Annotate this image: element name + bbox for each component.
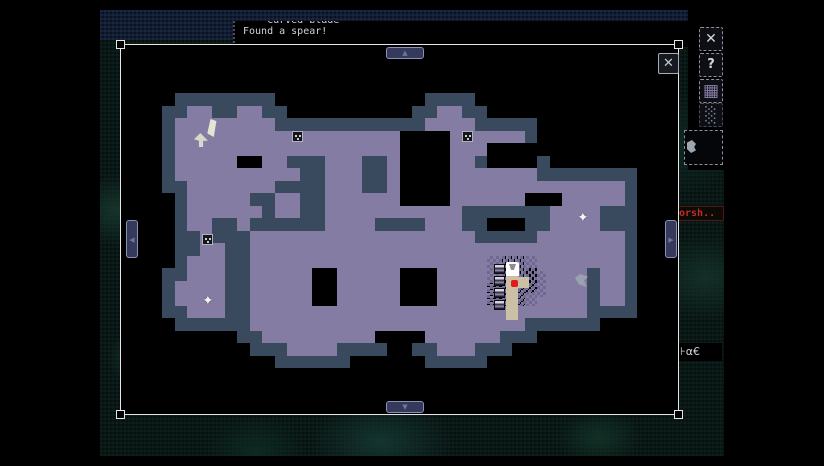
map-tile-wall	[237, 331, 250, 343]
map-tile-floor	[350, 181, 362, 193]
map-tile-wall	[162, 293, 175, 306]
map-tile-floor	[450, 243, 462, 256]
map-tile-floor	[537, 231, 550, 243]
map-tile-floor	[362, 268, 375, 281]
map-tile-floor	[575, 181, 587, 193]
map-tile-wall	[175, 193, 187, 206]
map-tile-floor	[387, 181, 400, 193]
map-tile-floor	[237, 206, 250, 218]
scroll-right-button[interactable]: ▶	[665, 220, 677, 258]
map-tile-wall	[300, 356, 312, 368]
map-tile-floor	[412, 306, 425, 318]
map-tile-floor	[362, 243, 375, 256]
marker-diamond-button[interactable]: ✕	[699, 27, 723, 51]
map-tile-floor	[237, 193, 250, 206]
map-tile-floor	[287, 331, 300, 343]
map-tile-floor	[337, 193, 350, 206]
map-tile-floor	[387, 156, 400, 168]
map-tile-floor	[400, 318, 412, 331]
map-tile-floor	[437, 243, 450, 256]
map-tile-floor	[575, 306, 587, 318]
question-icon: ?	[700, 54, 722, 76]
map-tile-floor	[437, 231, 450, 243]
map-tile-floor	[275, 256, 287, 268]
map-tile-floor	[175, 281, 187, 293]
map-tile-wall	[325, 118, 337, 131]
map-tile-wall	[250, 343, 262, 356]
map-tile-floor	[425, 231, 437, 243]
map-tile-floor	[262, 331, 275, 343]
map-tile-floor	[375, 268, 387, 281]
map-tile-floor	[612, 231, 625, 243]
map-tile-wall	[387, 218, 400, 231]
map-tile-wall	[187, 318, 200, 331]
map-tile-floor	[437, 281, 450, 293]
map-tile-floor	[550, 256, 562, 268]
map-tile-wall	[412, 118, 425, 131]
map-tile-wall	[337, 118, 350, 131]
map-tile-floor	[250, 231, 262, 243]
map-tile-wall	[162, 168, 175, 181]
map-tile-wall	[162, 268, 175, 281]
location-label: orsh..	[672, 206, 724, 221]
map-tile-wall	[575, 318, 587, 331]
map-tile-floor	[350, 231, 362, 243]
map-tile-floor	[387, 131, 400, 143]
map-tile-floor	[350, 143, 362, 156]
map-tile-wall	[312, 181, 325, 193]
map-tile-wall	[600, 168, 612, 181]
map-tile-wall	[625, 293, 637, 306]
map-tile-floor	[375, 206, 387, 218]
map-tile-floor	[450, 131, 462, 143]
map-tile-floor	[562, 218, 575, 231]
map-tile-floor	[175, 156, 187, 168]
map-tile-floor	[387, 281, 400, 293]
marker-notch	[509, 264, 516, 270]
map-tile-floor	[437, 118, 450, 131]
map-tile-wall	[475, 356, 487, 368]
close-button[interactable]: ✕	[658, 53, 679, 74]
map-tile-floor	[287, 206, 300, 218]
map-tile-floor	[475, 318, 487, 331]
map-tile-floor	[362, 318, 375, 331]
map-tile-wall	[337, 356, 350, 368]
map-tile-floor	[325, 193, 337, 206]
map-tile-wall	[587, 281, 600, 293]
map-tile-floor	[262, 131, 275, 143]
map-tile-wall	[525, 318, 537, 331]
map-tile-wall	[600, 206, 612, 218]
map-tile-floor	[387, 231, 400, 243]
map-tile-wall	[262, 93, 275, 106]
map-tile-floor	[437, 256, 450, 268]
map-tile-wall	[175, 268, 187, 281]
map-tile-floor	[337, 131, 350, 143]
map-tile-wall	[300, 193, 312, 206]
map-tile-floor	[212, 168, 225, 181]
map-tile-floor	[200, 281, 212, 293]
map-tile-wall	[612, 206, 625, 218]
map-tile-floor	[462, 118, 475, 131]
map-tile-floor	[337, 281, 350, 293]
map-tile-wall	[625, 231, 637, 243]
map-tile-floor	[475, 281, 487, 293]
map-tile-wall	[225, 231, 237, 243]
map-tile-wall	[237, 231, 250, 243]
scroll-left-button[interactable]: ◀	[126, 220, 138, 258]
help-button[interactable]: ?	[699, 53, 723, 77]
map-tile-wall	[625, 181, 637, 193]
map-tile-floor	[250, 306, 262, 318]
map-tile-floor	[287, 343, 300, 356]
grid-dotted-button[interactable]: ░	[699, 103, 723, 127]
map-tile-floor	[450, 281, 462, 293]
map-tile-floor	[425, 218, 437, 231]
map-tile-wall	[250, 218, 262, 231]
map-tile-floor	[337, 168, 350, 181]
map-tile-wall	[425, 343, 437, 356]
item-shape	[194, 133, 208, 147]
game-screen: ✕ ? ▦ ░ orsh.. ⊦α€ *** Curved blade ****…	[0, 0, 824, 466]
map-tile-floor	[450, 256, 462, 268]
map-tile-floor	[437, 306, 450, 318]
map-tile-wall	[525, 331, 537, 343]
map-marker-player-dot-icon	[511, 280, 518, 287]
map-tile-floor	[275, 281, 287, 293]
map-tile-floor	[187, 206, 200, 218]
map-tile-floor	[500, 181, 512, 193]
map-marker-chest-icon	[462, 131, 473, 142]
map-marker-item-pick-icon	[193, 132, 210, 148]
map-tile-wall	[537, 206, 550, 218]
map-tile-floor	[525, 243, 537, 256]
map-tile-floor	[612, 256, 625, 268]
map-tile-floor	[487, 193, 500, 206]
map-tile-floor	[362, 293, 375, 306]
map-tile-floor	[600, 281, 612, 293]
map-tile-wall	[625, 206, 637, 218]
map-tile-floor	[200, 193, 212, 206]
map-tile-floor	[475, 193, 487, 206]
map-tile-wall	[362, 181, 375, 193]
map-tile-floor	[337, 143, 350, 156]
map-tile-floor	[462, 281, 475, 293]
map-tile-floor	[262, 243, 275, 256]
map-tile-floor	[300, 343, 312, 356]
map-tile-floor	[562, 193, 575, 206]
map-tile-wall	[600, 218, 612, 231]
chest-dots	[295, 135, 297, 137]
map-tile-floor	[437, 343, 450, 356]
map-tile-wall	[300, 181, 312, 193]
map-tile-floor	[450, 106, 462, 118]
map-tile-floor	[250, 281, 262, 293]
map-tile-floor	[262, 143, 275, 156]
map-tile-wall	[175, 318, 187, 331]
map-tile-floor	[200, 256, 212, 268]
map-tile-floor	[612, 281, 625, 293]
map-tile-floor	[287, 193, 300, 206]
map-tile-floor	[462, 193, 475, 206]
map-tile-floor	[462, 256, 475, 268]
map-tile-floor	[287, 293, 300, 306]
map-tile-floor	[450, 168, 462, 181]
map-tile-floor	[225, 168, 237, 181]
map-tile-floor	[187, 256, 200, 268]
map-tile-floor	[462, 243, 475, 256]
map-tile-floor	[262, 256, 275, 268]
map-tile-wall	[187, 231, 200, 243]
map-tile-wall	[262, 106, 275, 118]
map-tile-wall	[212, 318, 225, 331]
map-tile-wall	[475, 218, 487, 231]
map-tile-floor	[212, 256, 225, 268]
map-tile-wall	[625, 306, 637, 318]
map-tile-wall	[362, 118, 375, 131]
map-tile-wall	[212, 218, 225, 231]
map-tile-wall	[225, 243, 237, 256]
map-tile-wall	[187, 243, 200, 256]
map-tile-wall	[312, 356, 325, 368]
map-tile-floor	[562, 231, 575, 243]
map-tile-floor	[187, 168, 200, 181]
map-tile-wall	[575, 168, 587, 181]
map-tile-wall	[512, 118, 525, 131]
map-tile-floor	[187, 106, 200, 118]
map-tile-floor	[475, 181, 487, 193]
window-corner-tick	[674, 40, 683, 49]
map-tile-floor	[325, 168, 337, 181]
map-tile-wall	[225, 268, 237, 281]
map-tile-floor	[412, 243, 425, 256]
map-tile-wall	[312, 193, 325, 206]
map-tile-floor	[400, 231, 412, 243]
map-tile-floor	[212, 193, 225, 206]
map-tile-floor	[550, 181, 562, 193]
map-tile-floor	[337, 268, 350, 281]
map-tile-floor	[337, 256, 350, 268]
map-tile-floor	[437, 218, 450, 231]
map-tile-wall	[162, 143, 175, 156]
map-tile-floor	[287, 231, 300, 243]
map-tile-floor	[262, 118, 275, 131]
map-tile-floor	[575, 243, 587, 256]
map-tile-floor	[287, 168, 300, 181]
map-tile-floor	[375, 306, 387, 318]
map-tile-floor	[175, 131, 187, 143]
map-tile-wall	[425, 93, 437, 106]
map-tile-wall	[425, 106, 437, 118]
map-tile-wall	[287, 118, 300, 131]
map-tile-wall	[262, 343, 275, 356]
map-tile-floor	[325, 156, 337, 168]
map-tile-floor	[337, 331, 350, 343]
map-tile-wall	[387, 118, 400, 131]
map-tile-floor	[612, 181, 625, 193]
map-tile-wall	[625, 168, 637, 181]
map-tile-wall	[287, 181, 300, 193]
map-tile-wall	[550, 318, 562, 331]
map-tile-wall	[462, 206, 475, 218]
map-tile-floor	[325, 256, 337, 268]
panel-slot-box[interactable]	[684, 130, 723, 165]
map-tile-floor	[425, 118, 437, 131]
map-tile-floor	[387, 306, 400, 318]
map-tile-floor	[512, 168, 525, 181]
map-tile-floor	[275, 306, 287, 318]
map-tile-floor	[262, 306, 275, 318]
map-tile-floor	[450, 231, 462, 243]
map-tile-floor	[325, 206, 337, 218]
map-tile-floor	[350, 243, 362, 256]
window-corner-tick	[116, 40, 125, 49]
map-tile-wall	[537, 218, 550, 231]
map-tile-floor	[250, 168, 262, 181]
map-tile-wall	[237, 306, 250, 318]
map-tile-floor	[200, 156, 212, 168]
map-tile-floor	[225, 131, 237, 143]
map-tile-floor	[325, 306, 337, 318]
map-marker-chest-icon	[202, 234, 213, 245]
map-tile-floor	[337, 181, 350, 193]
map-tile-wall	[525, 131, 537, 143]
map-tile-floor	[412, 256, 425, 268]
map-tile-wall	[487, 231, 500, 243]
map-tile-wall	[212, 93, 225, 106]
map-tile-wall	[537, 168, 550, 181]
map-tile-floor	[475, 306, 487, 318]
map-tile-wall	[500, 118, 512, 131]
map-tile-floor	[262, 156, 275, 168]
map-tile-wall	[525, 118, 537, 131]
map-tile-floor	[437, 106, 450, 118]
map-tile-floor	[275, 193, 287, 206]
grid-solid-button[interactable]: ▦	[699, 79, 723, 103]
map-tile-floor	[250, 143, 262, 156]
window-corner-tick	[674, 410, 683, 419]
map-tile-wall	[475, 106, 487, 118]
map-tile-floor	[350, 331, 362, 343]
map-tile-floor	[287, 243, 300, 256]
map-tile-wall	[162, 118, 175, 131]
map-tile-floor	[300, 306, 312, 318]
map-tile-floor	[450, 156, 462, 168]
map-tile-wall	[162, 181, 175, 193]
map-tile-wall	[625, 256, 637, 268]
map-tile-floor	[462, 306, 475, 318]
map-tile-wall	[375, 181, 387, 193]
map-tile-wall	[475, 206, 487, 218]
map-tile-floor	[450, 218, 462, 231]
map-tile-floor	[400, 206, 412, 218]
map-tile-floor	[362, 281, 375, 293]
map-tile-wall	[375, 168, 387, 181]
scroll-up-button[interactable]: ▲	[386, 47, 424, 59]
map-tile-floor	[187, 181, 200, 193]
map-tile-wall	[537, 318, 550, 331]
map-tile-floor	[550, 206, 562, 218]
map-tile-wall	[350, 343, 362, 356]
map-marker-chest-icon	[292, 131, 303, 142]
map-tile-floor	[512, 243, 525, 256]
map-tile-floor	[475, 243, 487, 256]
map-tile-wall	[237, 281, 250, 293]
map-tile-wall	[612, 306, 625, 318]
map-tile-floor	[262, 168, 275, 181]
map-tile-floor	[300, 293, 312, 306]
map-tile-floor	[325, 343, 337, 356]
log-line-latest: Found a spear!	[243, 26, 688, 37]
map-tile-floor	[462, 156, 475, 168]
map-tile-floor	[250, 118, 262, 131]
map-tile-wall	[262, 206, 275, 218]
map-tile-floor	[500, 168, 512, 181]
map-tile-floor	[325, 331, 337, 343]
map-tile-wall	[450, 356, 462, 368]
map-tile-floor	[212, 206, 225, 218]
map-tile-floor	[562, 256, 575, 268]
map-tile-floor	[412, 206, 425, 218]
map-tile-floor	[262, 268, 275, 281]
map-tile-floor	[562, 206, 575, 218]
map-tile-wall	[362, 343, 375, 356]
map-tile-floor	[325, 318, 337, 331]
map-tile-wall	[487, 206, 500, 218]
scroll-down-button[interactable]: ▼	[386, 401, 424, 413]
map-tile-wall	[237, 268, 250, 281]
map-tile-floor	[487, 131, 500, 143]
map-tile-floor	[200, 206, 212, 218]
map-tile-floor	[275, 331, 287, 343]
map-tile-floor	[250, 268, 262, 281]
map-tile-floor	[262, 318, 275, 331]
map-tile-floor	[225, 156, 237, 168]
map-tile-floor	[200, 181, 212, 193]
map-tile-wall	[400, 218, 412, 231]
map-tile-wall	[300, 118, 312, 131]
map-tile-wall	[162, 306, 175, 318]
map-tile-wall	[275, 118, 287, 131]
map-tile-floor	[375, 318, 387, 331]
map-tile-floor	[375, 193, 387, 206]
map-tile-wall	[412, 218, 425, 231]
map-tile-floor	[275, 293, 287, 306]
map-tile-floor	[312, 131, 325, 143]
map-tile-floor	[225, 206, 237, 218]
map-tile-floor	[612, 193, 625, 206]
map-tile-floor	[425, 206, 437, 218]
map-tile-wall	[175, 106, 187, 118]
map-tile-floor	[462, 168, 475, 181]
map-tile-floor	[325, 243, 337, 256]
map-tile-wall	[587, 306, 600, 318]
map-tile-wall	[175, 93, 187, 106]
map-tile-wall	[250, 331, 262, 343]
map-tile-floor	[287, 268, 300, 281]
map-tile-wall	[612, 218, 625, 231]
map-tile-floor	[175, 293, 187, 306]
map-tile-wall	[362, 156, 375, 168]
map-tile-floor	[462, 268, 475, 281]
map-tile-floor	[300, 281, 312, 293]
map-tile-floor	[362, 231, 375, 243]
map-tile-wall	[487, 343, 500, 356]
map-tile-wall	[500, 206, 512, 218]
map-tile-floor	[187, 293, 200, 306]
map-tile-floor	[362, 218, 375, 231]
map-tile-wall	[225, 281, 237, 293]
